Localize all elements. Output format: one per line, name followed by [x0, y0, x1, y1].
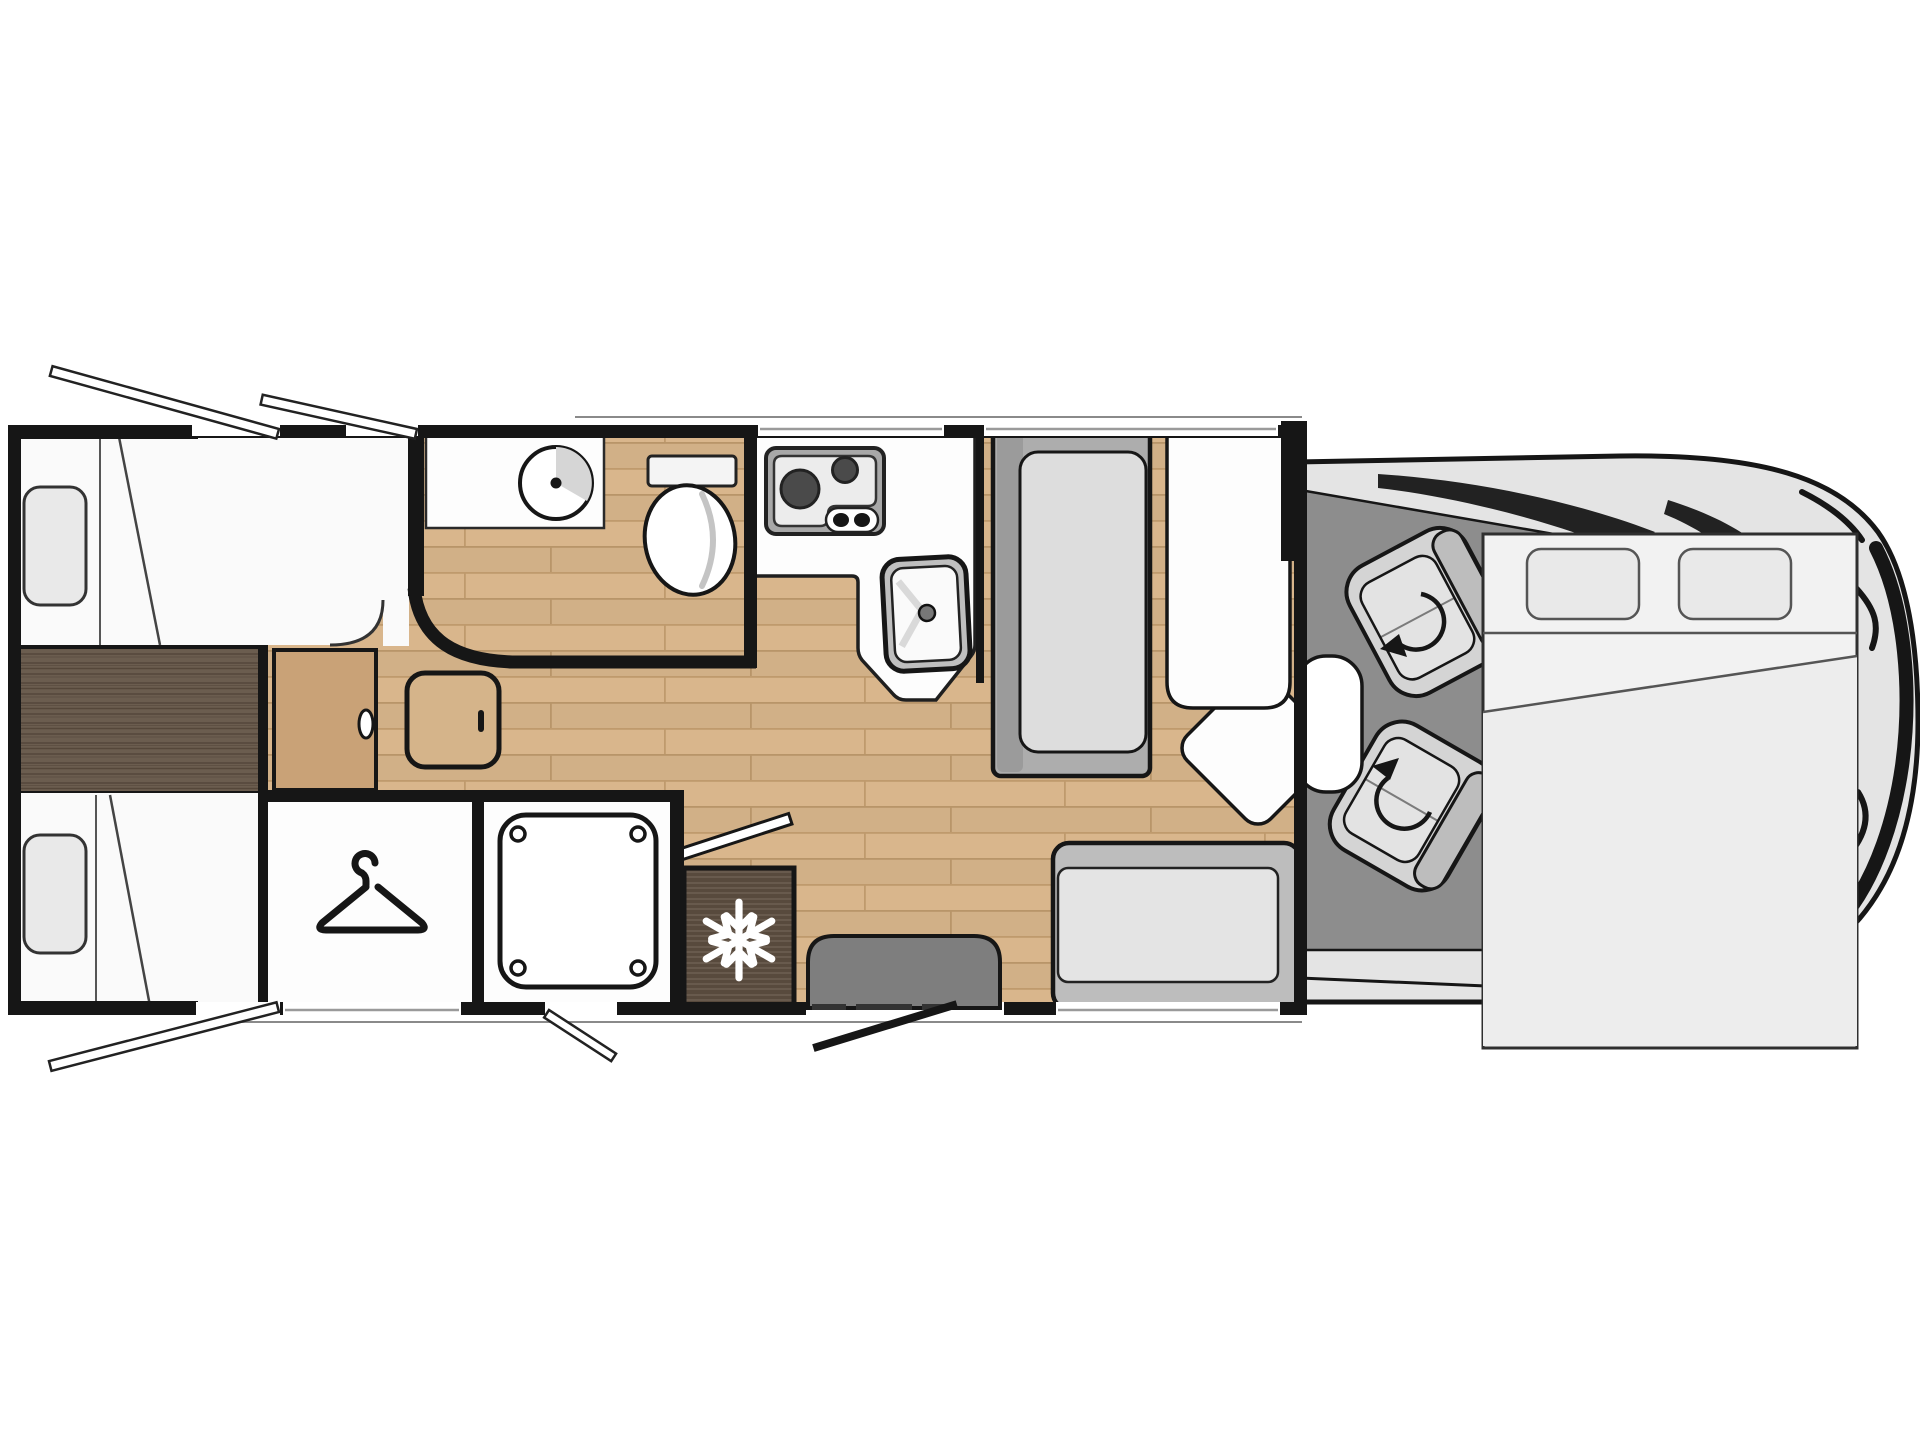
dinette-bench	[993, 428, 1150, 776]
shower-cubicle	[483, 795, 673, 1008]
bed-head-panel-sliver	[383, 430, 409, 646]
shower-jet	[631, 961, 645, 975]
shower-jet	[511, 961, 525, 975]
step-handle	[478, 710, 484, 732]
pillow-offside	[24, 487, 86, 605]
entry-step	[808, 936, 1000, 1008]
center-wood-deck	[18, 647, 262, 793]
burner-large	[781, 470, 819, 508]
bed-pillow-right	[1679, 549, 1791, 619]
drop-down-bed	[1483, 534, 1857, 1048]
door-handle	[359, 710, 373, 738]
door-sill-mark	[856, 1004, 912, 1010]
sink-tap	[919, 605, 936, 622]
kitchen-sink	[881, 556, 971, 672]
wardrobe	[268, 795, 478, 1008]
door-sill-mark	[812, 1004, 846, 1010]
duvet	[1483, 656, 1857, 1046]
bed-pillow-left	[1527, 549, 1639, 619]
burner-small	[833, 458, 858, 483]
two-burner-hob	[766, 448, 884, 534]
washbasin	[520, 447, 592, 519]
bedside-step-unit	[407, 673, 499, 767]
motorhome-floorplan	[0, 0, 1920, 1440]
open-window-sash	[544, 1010, 616, 1061]
floorplan-canvas	[0, 0, 1920, 1440]
shower-jet	[511, 827, 525, 841]
pillow-nearside	[24, 835, 86, 953]
shower-jet	[631, 827, 645, 841]
side-sofa-bench	[1053, 843, 1300, 1009]
